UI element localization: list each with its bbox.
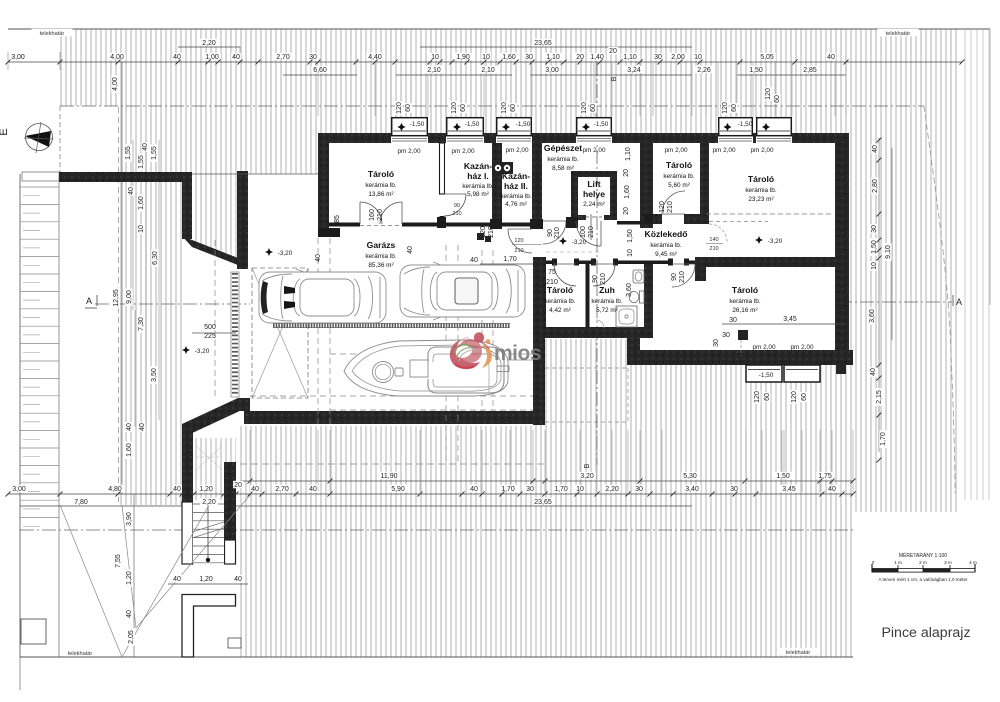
svg-text:3,24: 3,24 [627, 67, 641, 74]
svg-text:60: 60 [801, 393, 808, 401]
svg-text:2,80: 2,80 [872, 179, 879, 193]
svg-text:30: 30 [871, 225, 878, 233]
svg-text:90: 90 [454, 203, 460, 209]
svg-text:210: 210 [554, 227, 561, 239]
svg-text:7,80: 7,80 [74, 499, 88, 506]
svg-text:40: 40 [315, 254, 322, 262]
svg-text:210: 210 [488, 226, 495, 238]
svg-text:12,95: 12,95 [113, 289, 120, 307]
svg-text:2,70: 2,70 [275, 486, 289, 493]
svg-text:helye: helye [583, 189, 605, 199]
svg-text:1,10: 1,10 [625, 147, 632, 161]
svg-text:120: 120 [791, 391, 798, 403]
svg-text:210: 210 [452, 211, 461, 217]
svg-text:-1,50: -1,50 [759, 372, 774, 379]
svg-text:9,10: 9,10 [885, 245, 892, 259]
svg-text:120: 120 [480, 226, 487, 238]
svg-text:30: 30 [654, 54, 662, 61]
svg-text:1,10: 1,10 [623, 54, 637, 61]
svg-text:telekhatár: telekhatár [40, 31, 65, 37]
svg-text:1 m: 1 m [894, 560, 902, 565]
svg-text:20: 20 [576, 54, 584, 61]
svg-text:120: 120 [659, 201, 666, 213]
svg-text:9,00: 9,00 [126, 290, 133, 304]
svg-text:1,60: 1,60 [126, 443, 133, 457]
svg-text:A terven mért 1 cm, a valóságb: A terven mért 1 cm, a valóságban 1,0 mét… [878, 577, 968, 582]
svg-text:5,60 m²: 5,60 m² [668, 182, 690, 189]
svg-text:É: É [0, 128, 10, 135]
svg-text:10: 10 [576, 486, 584, 493]
svg-text:pm 2,00: pm 2,00 [712, 147, 736, 154]
svg-text:210: 210 [514, 248, 523, 254]
svg-text:Tároló: Tároló [748, 174, 774, 184]
svg-text:3 m: 3 m [944, 560, 952, 565]
svg-text:210: 210 [377, 209, 384, 221]
svg-text:pm 2,00: pm 2,00 [451, 148, 475, 155]
svg-text:3,00: 3,00 [12, 486, 26, 493]
svg-text:kerámia lb.: kerámia lb. [729, 298, 760, 305]
svg-text:11,90: 11,90 [381, 473, 398, 480]
svg-text:-1,50: -1,50 [738, 121, 753, 128]
svg-text:kerámia lb.: kerámia lb. [365, 182, 396, 189]
svg-text:pm 2,00: pm 2,00 [582, 147, 606, 154]
svg-text:2,00: 2,00 [671, 54, 685, 61]
svg-text:pm 2,00: pm 2,00 [790, 344, 814, 351]
svg-text:85,36 m²: 85,36 m² [368, 262, 393, 269]
svg-text:40: 40 [309, 486, 317, 493]
svg-text:40: 40 [126, 423, 133, 431]
svg-text:pm 2,00: pm 2,00 [750, 147, 774, 154]
svg-text:210: 210 [667, 201, 674, 213]
svg-text:ház II.: ház II. [504, 181, 528, 191]
svg-text:60: 60 [590, 104, 597, 112]
svg-text:pm 2,00: pm 2,00 [397, 148, 421, 155]
svg-text:1,70: 1,70 [503, 256, 517, 263]
svg-text:5,90: 5,90 [391, 486, 405, 493]
svg-text:210: 210 [679, 271, 686, 283]
svg-text:40: 40 [828, 486, 836, 493]
svg-text:60: 60 [460, 104, 467, 112]
svg-text:40: 40 [872, 145, 879, 153]
svg-text:8,58 m²: 8,58 m² [552, 165, 574, 172]
svg-text:-1,50: -1,50 [516, 121, 531, 128]
svg-text:1,20: 1,20 [199, 486, 213, 493]
svg-text:5,98 m²: 5,98 m² [467, 191, 489, 198]
svg-text:-3,20: -3,20 [768, 238, 783, 245]
svg-text:kerámia lb.: kerámia lb. [591, 298, 622, 305]
svg-text:2,10: 2,10 [427, 67, 441, 74]
svg-text:1,10: 1,10 [546, 54, 560, 61]
svg-text:telekhatár: telekhatár [68, 651, 93, 657]
svg-text:40: 40 [173, 576, 181, 583]
svg-text:1,00: 1,00 [205, 54, 219, 61]
svg-text:1,20: 1,20 [199, 576, 213, 583]
svg-text:1,50: 1,50 [776, 473, 790, 480]
svg-text:3,00: 3,00 [545, 67, 559, 74]
svg-text:20: 20 [234, 482, 242, 489]
svg-text:1,90: 1,90 [456, 54, 470, 61]
svg-text:4,40: 4,40 [368, 54, 382, 61]
svg-text:4,00: 4,00 [110, 54, 124, 61]
svg-text:1,75: 1,75 [818, 473, 832, 480]
svg-text:40: 40 [139, 423, 146, 431]
svg-text:1,50: 1,50 [749, 67, 763, 74]
svg-text:1,70: 1,70 [880, 432, 887, 446]
svg-text:4,00: 4,00 [112, 77, 119, 91]
svg-text:500: 500 [204, 324, 216, 331]
svg-text:13,86 m²: 13,86 m² [368, 191, 393, 198]
svg-text:10: 10 [627, 249, 634, 257]
svg-text:Garázs: Garázs [367, 240, 396, 250]
svg-text:26,16 m²: 26,16 m² [732, 307, 757, 314]
svg-text:210: 210 [600, 273, 607, 285]
svg-text:20: 20 [623, 169, 630, 177]
svg-text:kerámia lb.: kerámia lb. [547, 156, 578, 163]
svg-text:3,00: 3,00 [11, 54, 25, 61]
svg-text:3,40: 3,40 [685, 486, 699, 493]
svg-text:5,05: 5,05 [760, 54, 774, 61]
svg-text:telekhatár: telekhatár [886, 31, 911, 37]
svg-text:30: 30 [525, 54, 533, 61]
svg-text:2,15: 2,15 [876, 390, 883, 404]
svg-text:75: 75 [548, 269, 556, 276]
svg-text:Lift: Lift [587, 179, 600, 189]
svg-text:210: 210 [546, 279, 558, 286]
svg-text:40: 40 [126, 610, 133, 618]
svg-text:120: 120 [514, 238, 523, 244]
svg-text:30: 30 [729, 317, 737, 324]
svg-text:30: 30 [526, 486, 534, 493]
svg-text:1,60: 1,60 [624, 185, 631, 199]
svg-text:1,55: 1,55 [151, 146, 158, 160]
svg-text:2,85: 2,85 [803, 67, 817, 74]
svg-text:pm 2,00: pm 2,00 [505, 147, 529, 154]
svg-text:20: 20 [623, 207, 630, 215]
svg-text:Tároló: Tároló [547, 285, 573, 295]
svg-text:B: B [611, 76, 618, 81]
svg-text:3,50: 3,50 [151, 368, 158, 382]
svg-text:7,55: 7,55 [115, 554, 122, 568]
svg-text:Tároló: Tároló [666, 160, 692, 170]
svg-text:1,55: 1,55 [125, 146, 132, 160]
svg-text:2,26: 2,26 [697, 67, 711, 74]
svg-text:30: 30 [722, 332, 730, 339]
svg-text:40: 40 [407, 246, 414, 254]
svg-text:-1,50: -1,50 [594, 121, 609, 128]
svg-text:6,60: 6,60 [313, 67, 327, 74]
svg-text:3,45: 3,45 [782, 486, 796, 493]
svg-text:1,60: 1,60 [502, 54, 516, 61]
svg-text:4 m: 4 m [969, 560, 977, 565]
svg-text:120: 120 [501, 102, 508, 114]
svg-text:mios: mios [494, 342, 541, 365]
svg-text:-1,50: -1,50 [410, 121, 425, 128]
svg-text:85: 85 [334, 215, 341, 223]
svg-text:40: 40 [142, 143, 149, 151]
svg-text:pm 2,00: pm 2,00 [664, 147, 688, 154]
svg-text:2,05: 2,05 [128, 630, 135, 644]
svg-text:2,20: 2,20 [202, 499, 216, 506]
svg-text:40: 40 [173, 486, 181, 493]
svg-text:-3,20: -3,20 [278, 250, 293, 257]
svg-text:90: 90 [671, 273, 678, 281]
svg-text:160: 160 [369, 209, 376, 221]
svg-text:Kazán-: Kazán- [502, 171, 530, 181]
svg-text:60: 60 [731, 104, 738, 112]
svg-text:120: 120 [451, 102, 458, 114]
svg-text:1,60: 1,60 [138, 196, 145, 210]
svg-text:kerámia lb.: kerámia lb. [663, 173, 694, 180]
svg-text:kerámia lb.: kerámia lb. [650, 242, 681, 249]
svg-text:kerámia lb.: kerámia lb. [365, 253, 396, 260]
svg-text:210: 210 [588, 226, 595, 238]
svg-text:40: 40 [232, 54, 240, 61]
svg-text:30: 30 [713, 339, 720, 347]
svg-text:30: 30 [635, 486, 643, 493]
svg-text:pm 2,00: pm 2,00 [752, 344, 776, 351]
svg-text:90: 90 [547, 229, 554, 237]
svg-text:23,65: 23,65 [534, 40, 552, 47]
svg-text:Tároló: Tároló [368, 169, 394, 179]
svg-text:Gépészet: Gépészet [544, 143, 582, 153]
svg-text:23,65: 23,65 [534, 499, 552, 506]
svg-text:MÉRETARÁNY 1:100: MÉRETARÁNY 1:100 [899, 552, 947, 559]
svg-text:5,30: 5,30 [683, 473, 697, 480]
svg-text:30: 30 [309, 54, 317, 61]
svg-text:140: 140 [709, 237, 718, 243]
svg-text:B: B [584, 463, 591, 468]
svg-text:Közlekedő: Közlekedő [645, 229, 688, 239]
svg-text:6,30: 6,30 [152, 251, 159, 265]
svg-text:1,20: 1,20 [126, 571, 133, 585]
svg-text:telekhatár: telekhatár [786, 650, 811, 656]
svg-text:Pince alaprajz: Pince alaprajz [881, 625, 970, 641]
svg-text:4,76 m²: 4,76 m² [505, 201, 527, 208]
svg-text:kerámia lb.: kerámia lb. [500, 193, 531, 200]
svg-text:120: 120 [581, 102, 588, 114]
svg-text:40: 40 [470, 257, 478, 264]
svg-text:kerámia lb.: kerámia lb. [745, 187, 776, 194]
svg-text:2,10: 2,10 [481, 67, 495, 74]
svg-text:225: 225 [204, 333, 216, 340]
svg-text:-3,20: -3,20 [195, 348, 210, 355]
svg-text:7,30: 7,30 [138, 317, 145, 331]
svg-text:kerámia lb.: kerámia lb. [462, 183, 493, 190]
svg-text:1,55: 1,55 [138, 155, 145, 169]
svg-text:40: 40 [827, 54, 835, 61]
svg-text:-3,20: -3,20 [572, 239, 587, 246]
svg-text:90: 90 [592, 275, 599, 283]
svg-text:2 m: 2 m [919, 560, 927, 565]
svg-text:3,60: 3,60 [869, 309, 876, 323]
svg-text:1,50: 1,50 [627, 229, 634, 243]
svg-text:10: 10 [138, 225, 145, 233]
svg-text:1,70: 1,70 [554, 486, 568, 493]
svg-text:-1,50: -1,50 [465, 121, 480, 128]
svg-text:9,45 m²: 9,45 m² [655, 251, 677, 258]
svg-text:3,20: 3,20 [580, 473, 594, 480]
svg-text:10: 10 [694, 54, 702, 61]
svg-text:60: 60 [405, 104, 412, 112]
svg-text:40: 40 [128, 187, 135, 195]
svg-text:120: 120 [722, 102, 729, 114]
svg-text:A: A [86, 296, 92, 306]
svg-text:3,45: 3,45 [783, 316, 797, 323]
svg-text:2,24 m²: 2,24 m² [583, 201, 605, 208]
svg-text:20: 20 [609, 48, 617, 55]
svg-text:4,42 m²: 4,42 m² [549, 307, 571, 314]
svg-text:120: 120 [765, 88, 772, 100]
svg-text:2,20: 2,20 [202, 40, 216, 47]
svg-text:40: 40 [870, 368, 877, 376]
svg-text:40: 40 [234, 576, 242, 583]
svg-text:100: 100 [580, 226, 587, 238]
svg-text:5,72 m²: 5,72 m² [596, 307, 618, 314]
svg-text:Zuh: Zuh [599, 285, 615, 295]
svg-text:3,60: 3,60 [626, 283, 633, 297]
svg-text:kerámia lb.: kerámia lb. [544, 298, 575, 305]
svg-text:120: 120 [754, 391, 761, 403]
svg-text:40: 40 [470, 486, 478, 493]
svg-text:1,70: 1,70 [501, 486, 515, 493]
svg-text:120: 120 [396, 102, 403, 114]
svg-text:Tároló: Tároló [732, 285, 758, 295]
svg-text:A: A [956, 297, 962, 307]
svg-text:2,20: 2,20 [605, 486, 619, 493]
svg-text:ház I.: ház I. [467, 171, 489, 181]
svg-text:23,23 m²: 23,23 m² [748, 196, 773, 203]
svg-text:10: 10 [871, 262, 878, 270]
svg-text:Kazán-: Kazán- [464, 161, 492, 171]
svg-text:60: 60 [764, 393, 771, 401]
svg-text:60: 60 [774, 95, 781, 103]
svg-text:210: 210 [709, 246, 718, 252]
svg-text:60: 60 [510, 104, 517, 112]
svg-text:2,70: 2,70 [276, 54, 290, 61]
svg-text:3,90: 3,90 [126, 512, 133, 526]
